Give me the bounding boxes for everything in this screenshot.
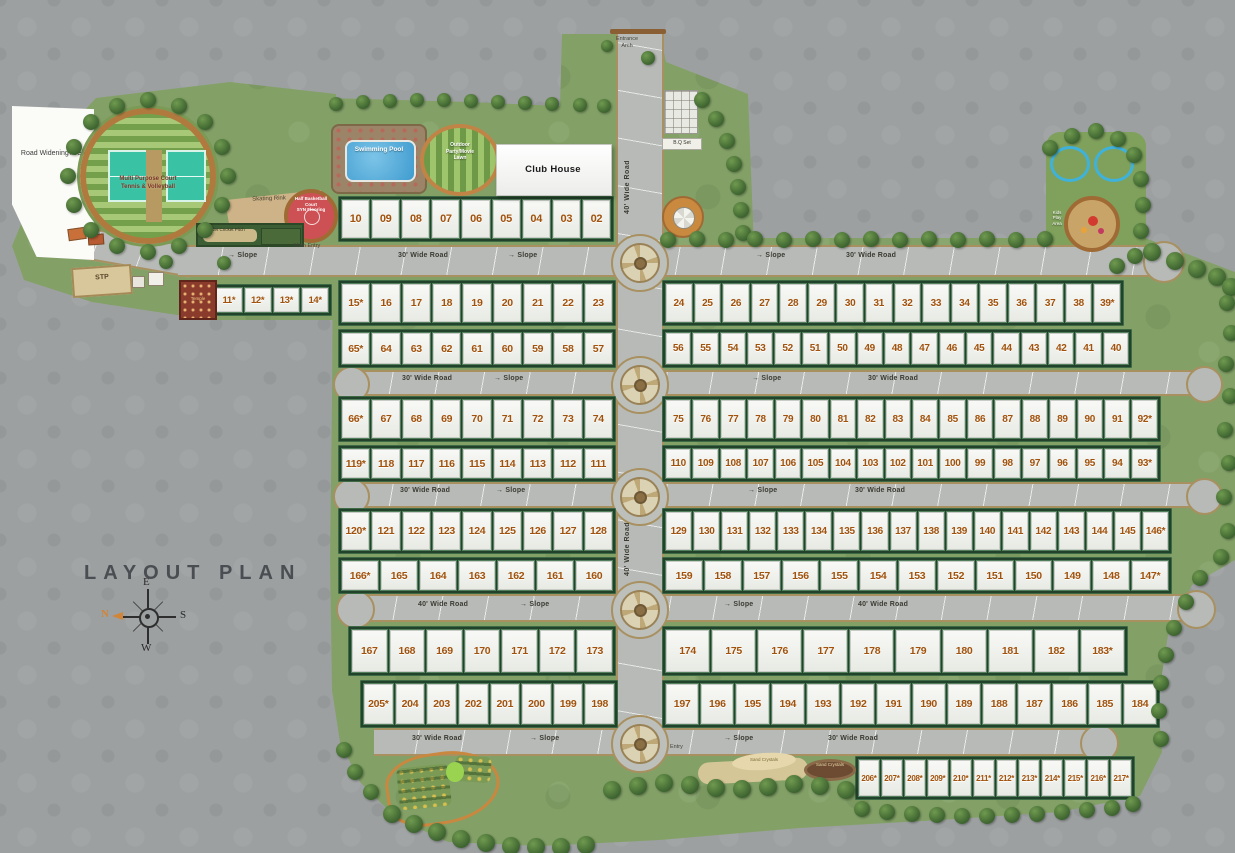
compass-east: E [143,576,150,588]
road-label: 40' Wide Road [624,160,631,214]
slope-label: → Slope [520,601,549,608]
road-label: 30' Wide Road [828,735,878,742]
layout-plan-canvas: 10090807060504030211*12*13*14*15*1617181… [0,0,1235,853]
compass-west: W [141,642,151,654]
road-labels-layer: → Slope30' Wide Road→ Slope→ Slope30' Wi… [0,0,1235,853]
slope-label: → Slope [724,601,753,608]
slope-label: → Slope [494,375,523,382]
compass-rose: E S W N [108,584,188,650]
road-label: 30' Wide Road [855,487,905,494]
north-arrow-icon [112,612,123,620]
slope-label: → Slope [724,735,753,742]
compass-center [145,614,150,619]
road-label: 40' Wide Road [624,522,631,576]
page-title: LAYOUT PLAN [84,562,301,585]
slope-label: → Slope [756,252,785,259]
road-label: 30' Wide Road [846,252,896,259]
road-label: 40' Wide Road [858,601,908,608]
road-label: 30' Wide Road [868,375,918,382]
road-label: 40' Wide Road [418,601,468,608]
slope-label: → Slope [530,735,559,742]
compass-north: N [101,608,109,620]
slope-label: → Slope [228,252,257,259]
road-label: 30' Wide Road [412,735,462,742]
slope-label: → Slope [496,487,525,494]
slope-label: → Slope [752,375,781,382]
road-label: 30' Wide Road [398,252,448,259]
road-label: Main Entry [294,243,320,249]
slope-label: → Slope [748,487,777,494]
road-label: Entrance Arch [610,36,644,49]
slope-label: → Slope [508,252,537,259]
compass-south: S [180,609,186,621]
road-label: Entry [670,744,683,750]
road-label: 30' Wide Road [400,487,450,494]
road-label: 30' Wide Road [402,375,452,382]
